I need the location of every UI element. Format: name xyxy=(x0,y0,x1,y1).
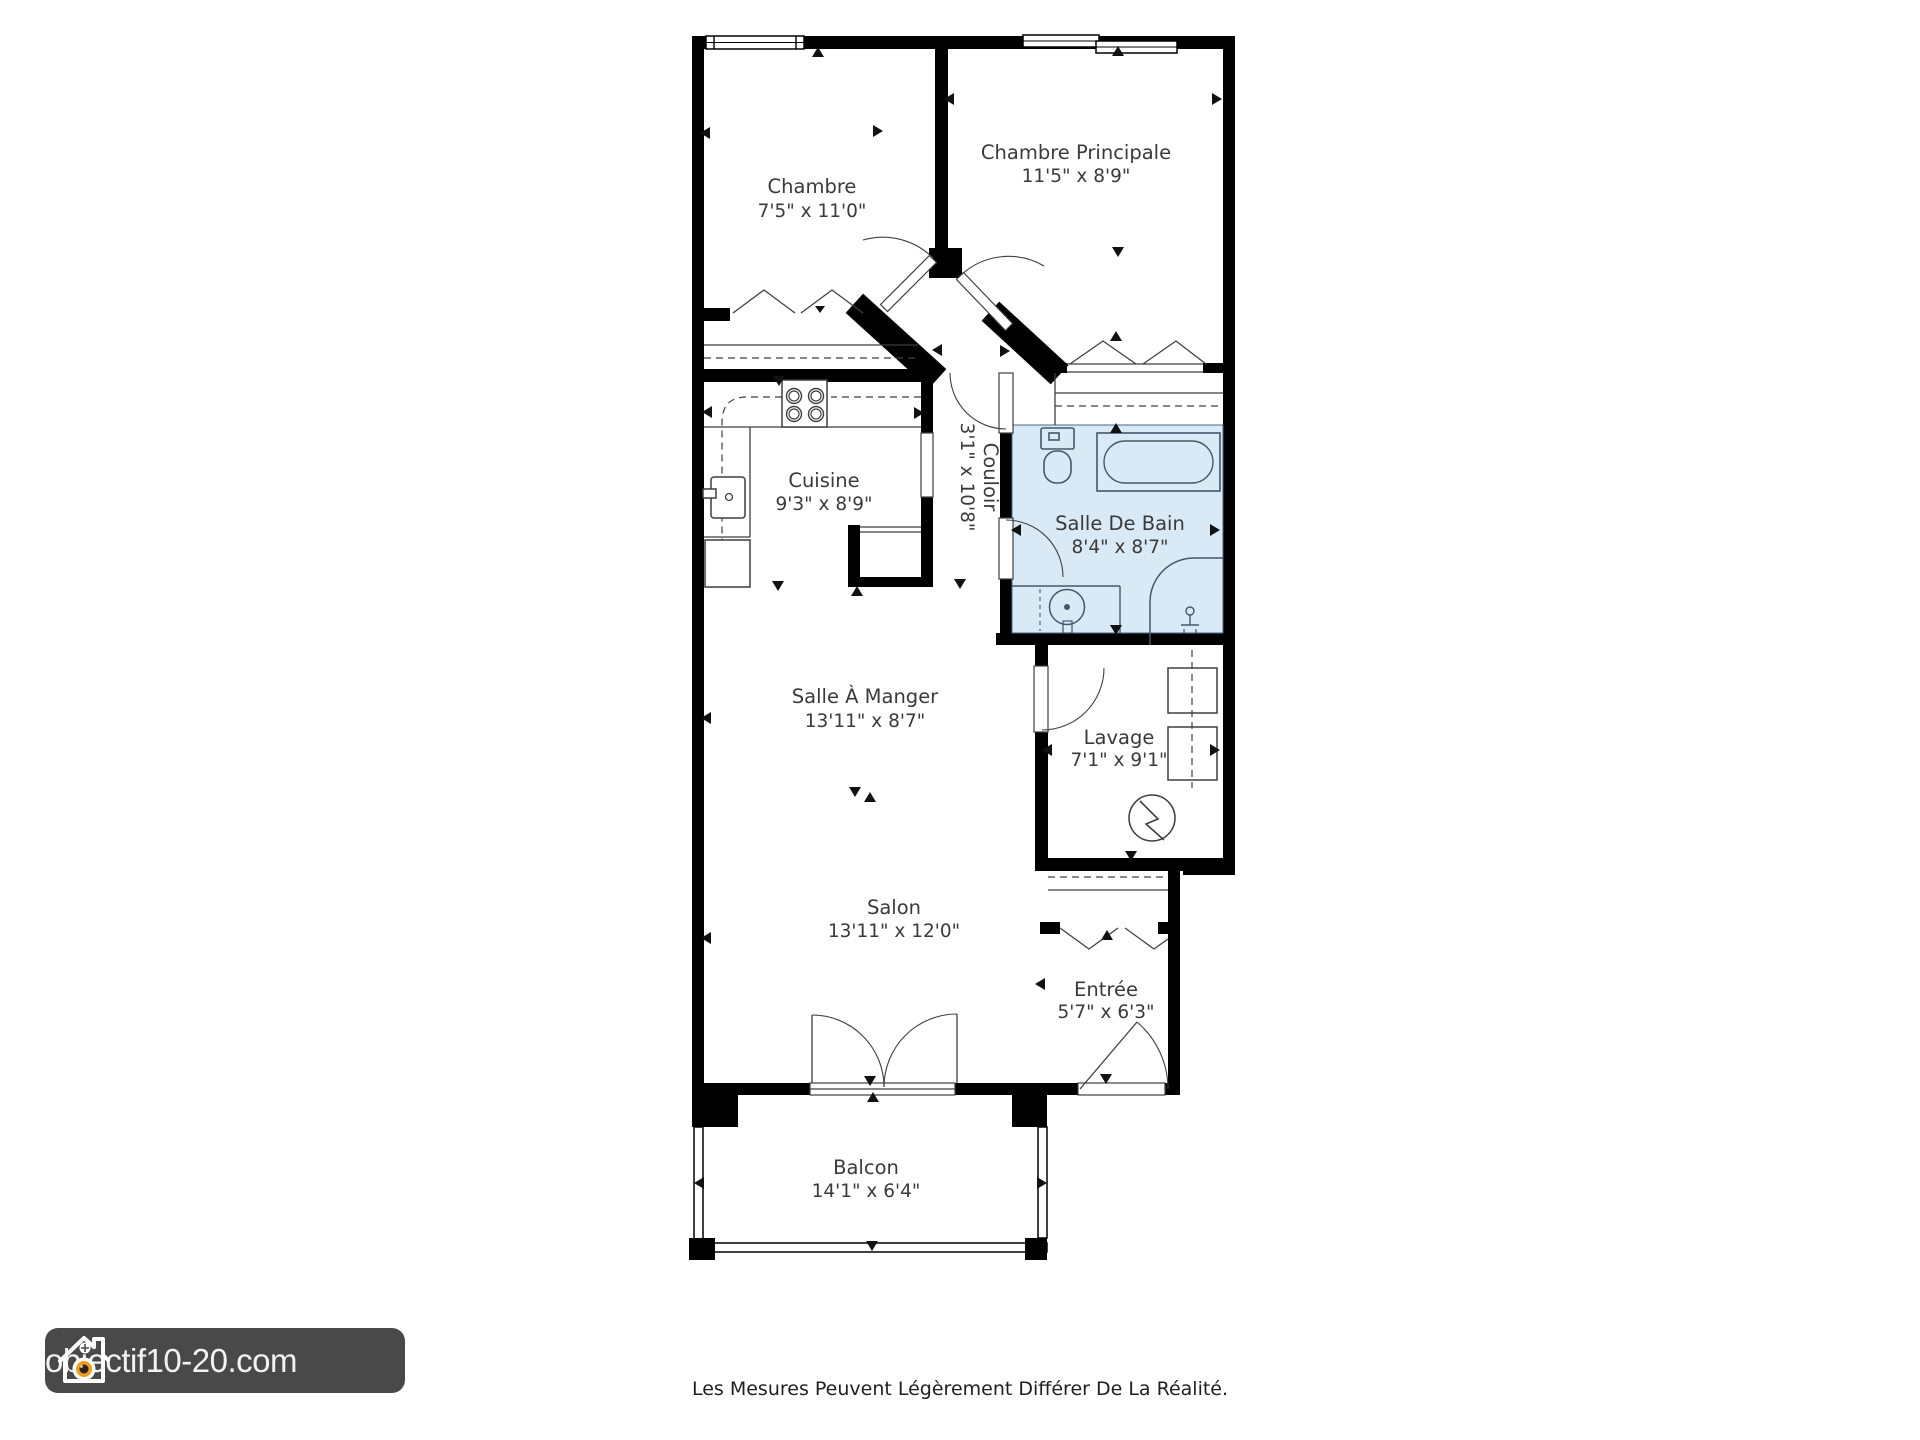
room-label-balcon: Balcon xyxy=(833,1156,899,1179)
chambre-principale-closet xyxy=(1055,341,1223,425)
wall-closet-stub-right xyxy=(860,308,872,321)
wall-bathroom-south xyxy=(996,633,1235,645)
wall-couloir-west-b xyxy=(921,497,933,587)
stove-icon xyxy=(782,380,827,427)
balcony-post-left xyxy=(689,1238,715,1260)
disclaimer-text: Les Mesures Peuvent Légèrement Différer … xyxy=(0,1378,1920,1400)
wall-salon-bottom-mid xyxy=(955,1083,1078,1095)
balcony-block-left xyxy=(692,1083,738,1127)
bathroom xyxy=(1012,425,1223,645)
floor-plan-drawing: Chambre 7'5" x 11'0" Chambre Principale … xyxy=(0,0,1920,1440)
door-chambre xyxy=(863,237,937,311)
door-chambre-principale xyxy=(957,256,1045,330)
measure-ticks xyxy=(694,46,1222,1251)
wall-entry-closet-stub-left xyxy=(1040,922,1060,934)
room-label-salle-de-bain: Salle De Bain xyxy=(1055,512,1185,535)
wall-right-lower xyxy=(1168,871,1180,1095)
wall-right-upper xyxy=(1223,36,1235,871)
wall-couloir-east-b xyxy=(1000,577,1012,633)
wall-closet-track-stub-left xyxy=(1040,363,1067,373)
wall-couloir-west-a xyxy=(921,377,933,433)
room-dims-chambre-principale: 11'5" x 8'9" xyxy=(1022,166,1131,187)
wall-step-right xyxy=(1183,858,1235,875)
room-label-couloir: Couloir xyxy=(979,443,1002,513)
closet-hangers-icon xyxy=(733,290,863,313)
doors xyxy=(810,237,1168,1095)
door-french-balcony xyxy=(810,1014,957,1095)
room-label-chambre: Chambre xyxy=(768,175,857,198)
room-dims-lavage: 7'1" x 9'1" xyxy=(1071,750,1168,771)
wall-diagonal-left xyxy=(864,312,928,370)
closet-hangers-icon xyxy=(1060,928,1168,949)
closet-hangers-icon xyxy=(1070,341,1206,364)
room-labels: Chambre 7'5" x 11'0" Chambre Principale … xyxy=(758,141,1185,1202)
room-label-cuisine: Cuisine xyxy=(788,469,859,492)
window-chambre xyxy=(706,36,804,49)
wall-bedroom-divider xyxy=(935,49,948,255)
balcony-block-right xyxy=(1012,1095,1047,1127)
floor-plan-page: Chambre 7'5" x 11'0" Chambre Principale … xyxy=(0,0,1920,1440)
kitchen-sink-icon xyxy=(703,477,745,518)
wall-closet-stub-left xyxy=(704,308,730,321)
room-dims-balcon: 14'1" x 6'4" xyxy=(812,1181,921,1202)
balcony-post-right xyxy=(1025,1238,1047,1260)
wall-left xyxy=(692,36,704,1095)
room-dims-salle-de-bain: 8'4" x 8'7" xyxy=(1072,537,1169,558)
room-label-lavage: Lavage xyxy=(1084,726,1155,749)
wall-lavage-west-a xyxy=(1035,645,1048,668)
room-label-salon: Salon xyxy=(867,896,921,919)
room-label-chambre-principale: Chambre Principale xyxy=(981,141,1171,164)
pantry-shelf xyxy=(860,527,921,532)
wall-entry-closet-stub-right xyxy=(1158,922,1168,934)
kitchen-pass-opening xyxy=(921,433,933,497)
room-label-entree: Entrée xyxy=(1074,978,1138,1001)
room-dims-cuisine: 9'3" x 8'9" xyxy=(776,494,873,515)
room-dims-couloir: 3'1" x 10'8" xyxy=(956,423,977,532)
door-entree-front xyxy=(1078,1022,1168,1095)
door-lavage xyxy=(1034,666,1104,732)
room-dims-salon: 13'11" x 12'0" xyxy=(828,921,960,942)
wall-closet-track-stub-right xyxy=(1203,363,1223,373)
room-dims-salle-a-manger: 13'11" x 8'7" xyxy=(805,711,926,732)
wall-salon-bottom-right xyxy=(1165,1083,1180,1095)
room-label-couloir-group: Couloir 3'1" x 10'8" xyxy=(956,423,1002,532)
room-dims-entree: 5'7" x 6'3" xyxy=(1058,1002,1155,1023)
fridge-icon xyxy=(705,540,750,587)
room-label-salle-a-manger: Salle À Manger xyxy=(792,685,939,708)
toilet-icon xyxy=(1041,428,1074,483)
room-dims-chambre: 7'5" x 11'0" xyxy=(758,201,867,222)
water-heater-icon xyxy=(1129,795,1175,841)
wall-pantry-bottom xyxy=(848,577,933,587)
